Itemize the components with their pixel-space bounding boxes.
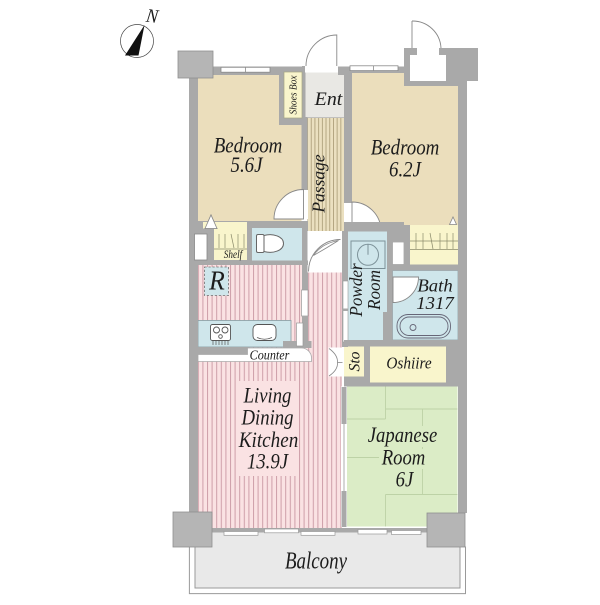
svg-text:Shoes Box: Shoes Box: [288, 75, 300, 115]
svg-text:Balcony: Balcony: [285, 547, 347, 574]
svg-text:Japanese: Japanese: [368, 424, 438, 448]
svg-text:Sto: Sto: [347, 351, 364, 371]
svg-text:Bedroom: Bedroom: [371, 136, 440, 160]
svg-text:13.9J: 13.9J: [247, 450, 289, 474]
svg-text:1317: 1317: [416, 293, 454, 312]
svg-text:Passage: Passage: [309, 154, 329, 214]
svg-text:Counter: Counter: [250, 348, 291, 363]
svg-text:Room: Room: [365, 270, 384, 311]
svg-text:5.6J: 5.6J: [230, 154, 263, 178]
svg-text:Ent: Ent: [314, 89, 343, 109]
svg-text:Kitchen: Kitchen: [238, 429, 298, 452]
svg-text:Powder: Powder: [347, 263, 366, 318]
svg-text:Oshiire: Oshiire: [386, 355, 431, 373]
svg-text:Shelf: Shelf: [224, 249, 244, 261]
svg-text:6.2J: 6.2J: [389, 158, 422, 182]
svg-text:Living: Living: [243, 384, 292, 408]
svg-text:Dining: Dining: [241, 406, 294, 430]
svg-text:Bath: Bath: [417, 276, 452, 295]
svg-text:6J: 6J: [396, 468, 415, 492]
svg-text:R: R: [208, 266, 225, 296]
svg-text:Room: Room: [381, 446, 426, 470]
